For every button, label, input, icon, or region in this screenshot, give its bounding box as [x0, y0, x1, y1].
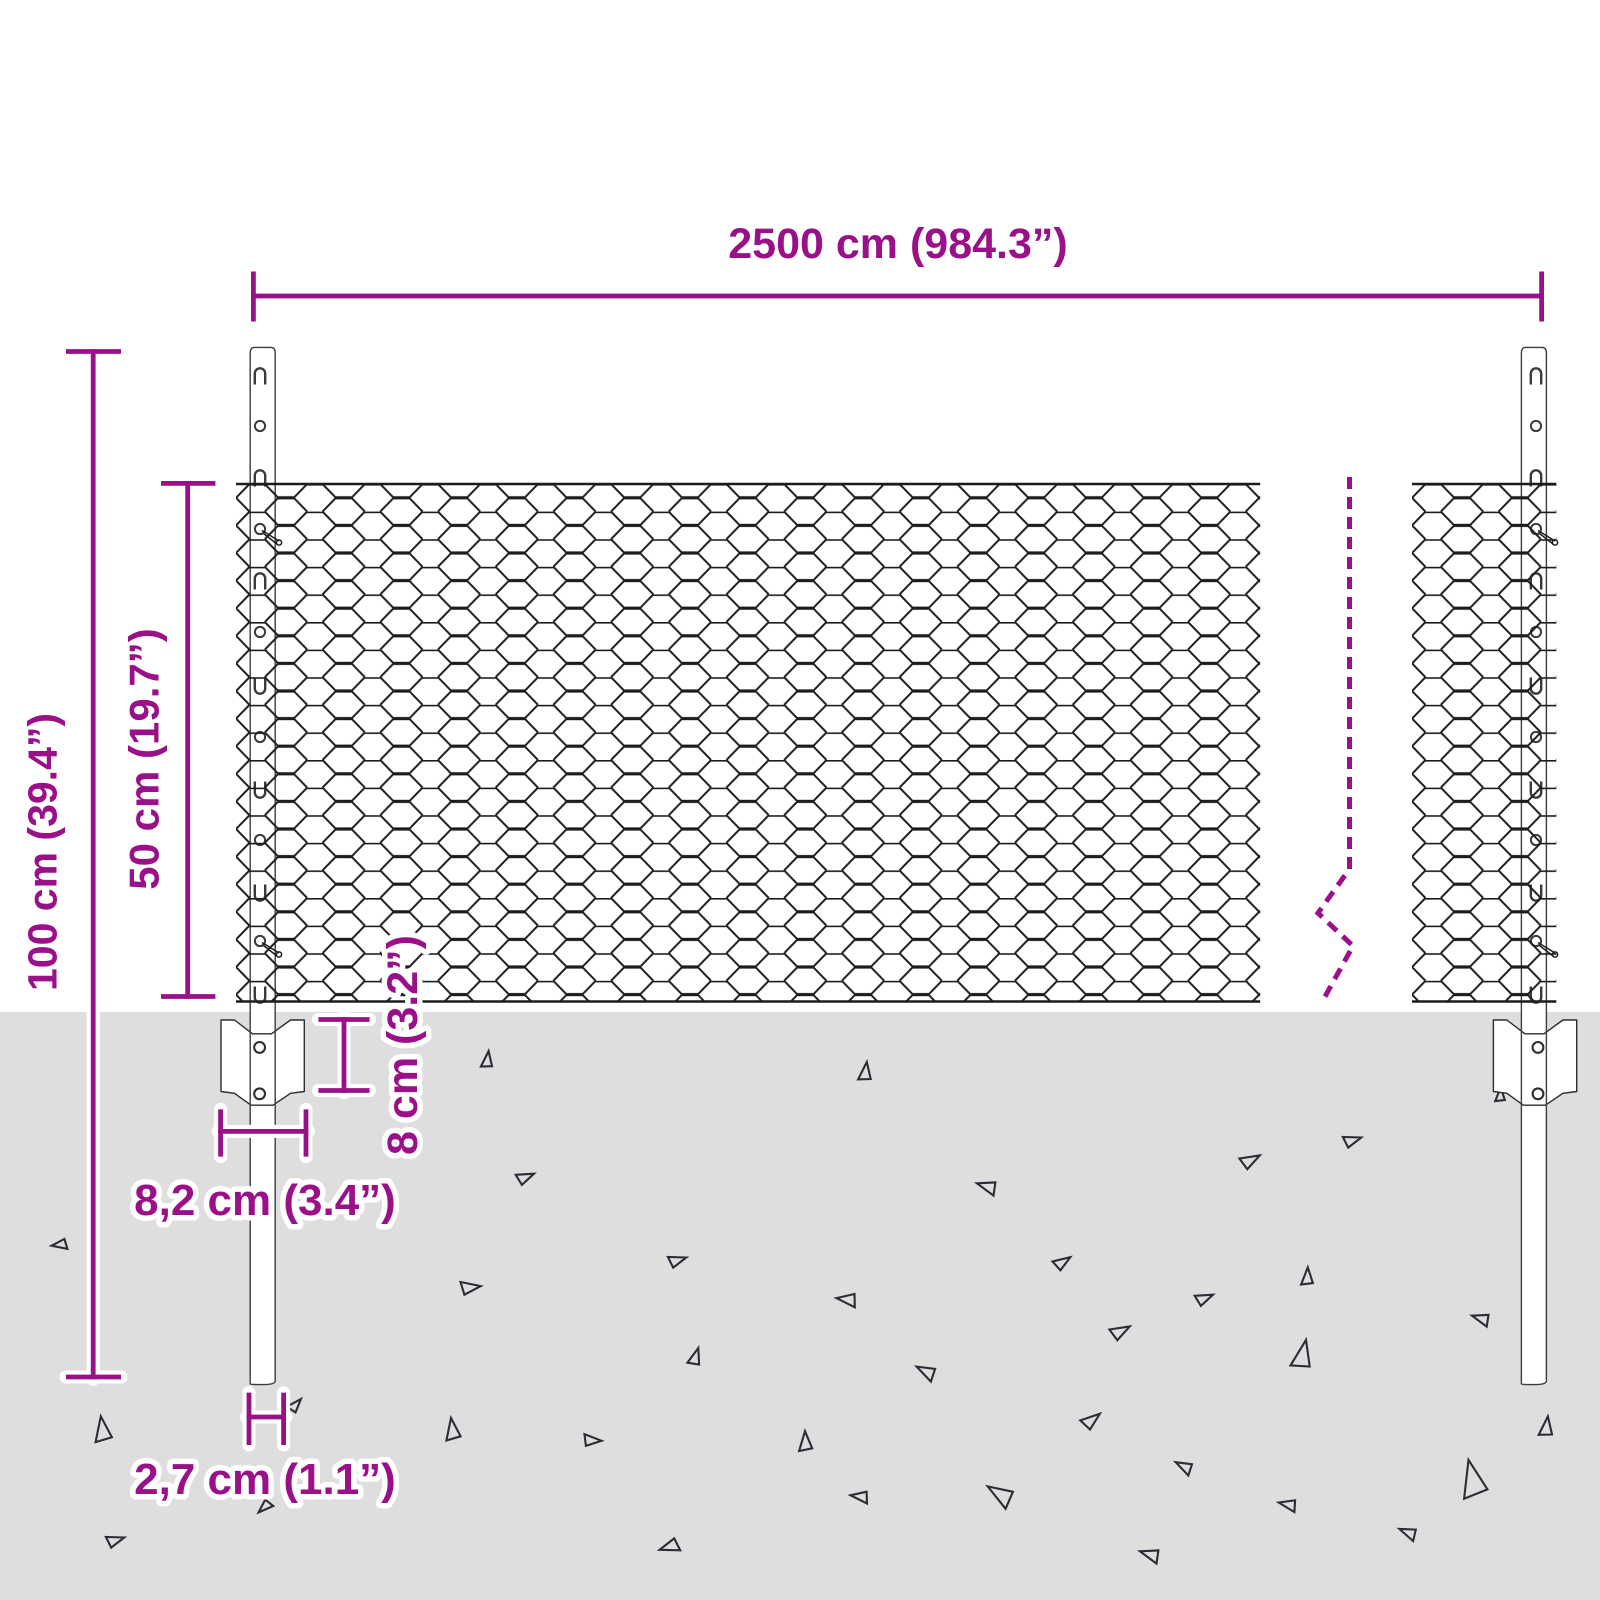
svg-text:8 cm (3.2”): 8 cm (3.2”)	[379, 935, 427, 1155]
svg-text:2,7 cm (1.1”): 2,7 cm (1.1”)	[134, 1455, 396, 1504]
svg-text:2500 cm (984.3”): 2500 cm (984.3”)	[728, 220, 1067, 268]
svg-text:50 cm (19.7”): 50 cm (19.7”)	[121, 628, 168, 889]
svg-text:8,2 cm (3.4”): 8,2 cm (3.4”)	[134, 1176, 396, 1225]
svg-text:100 cm (39.4”): 100 cm (39.4”)	[20, 713, 66, 991]
